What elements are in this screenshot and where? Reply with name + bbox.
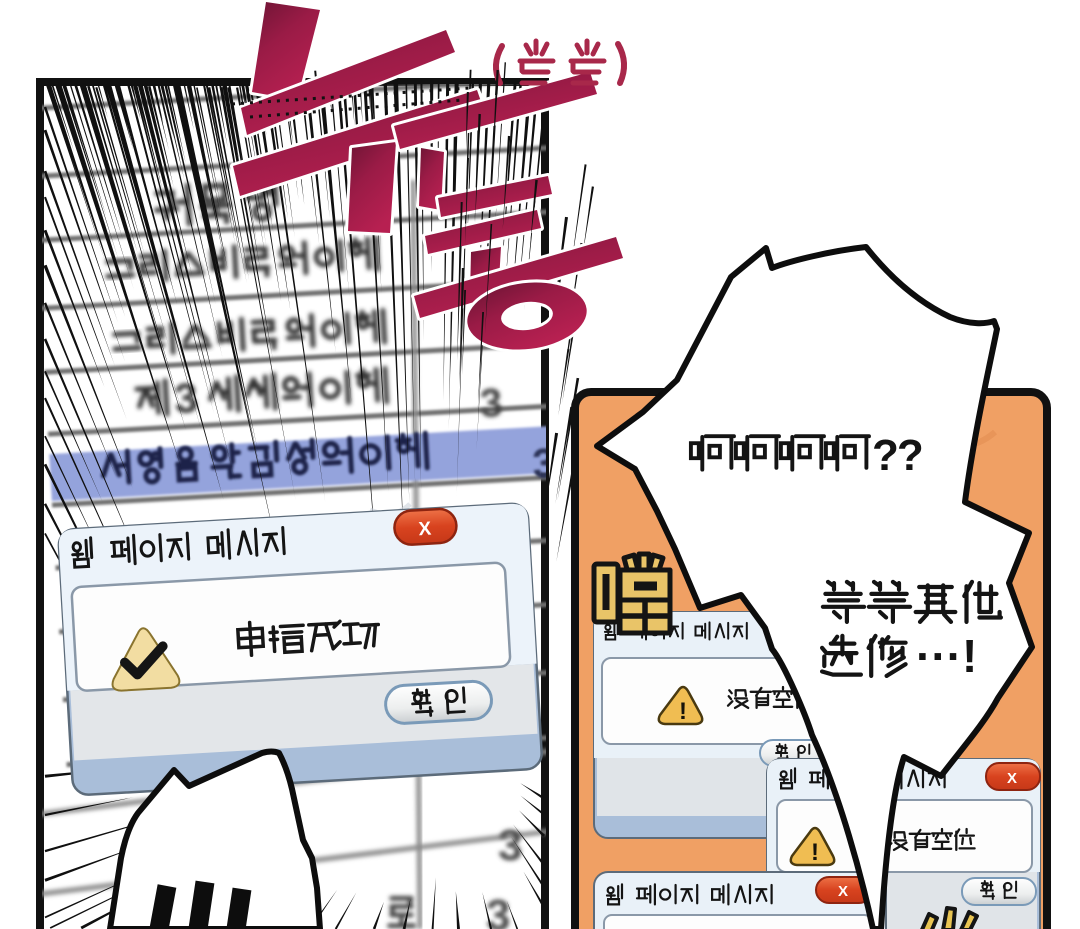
svg-text:X: X [838,883,848,900]
svg-text:X: X [1007,770,1017,787]
svg-text:X: X [418,519,432,541]
svg-text:3: 3 [498,821,522,870]
svg-text:??: ?? [872,431,922,480]
svg-text:!: ! [679,698,687,725]
svg-text:3: 3 [479,381,504,426]
svg-text:···!: ···! [916,630,977,682]
svg-text:!: ! [811,839,819,866]
